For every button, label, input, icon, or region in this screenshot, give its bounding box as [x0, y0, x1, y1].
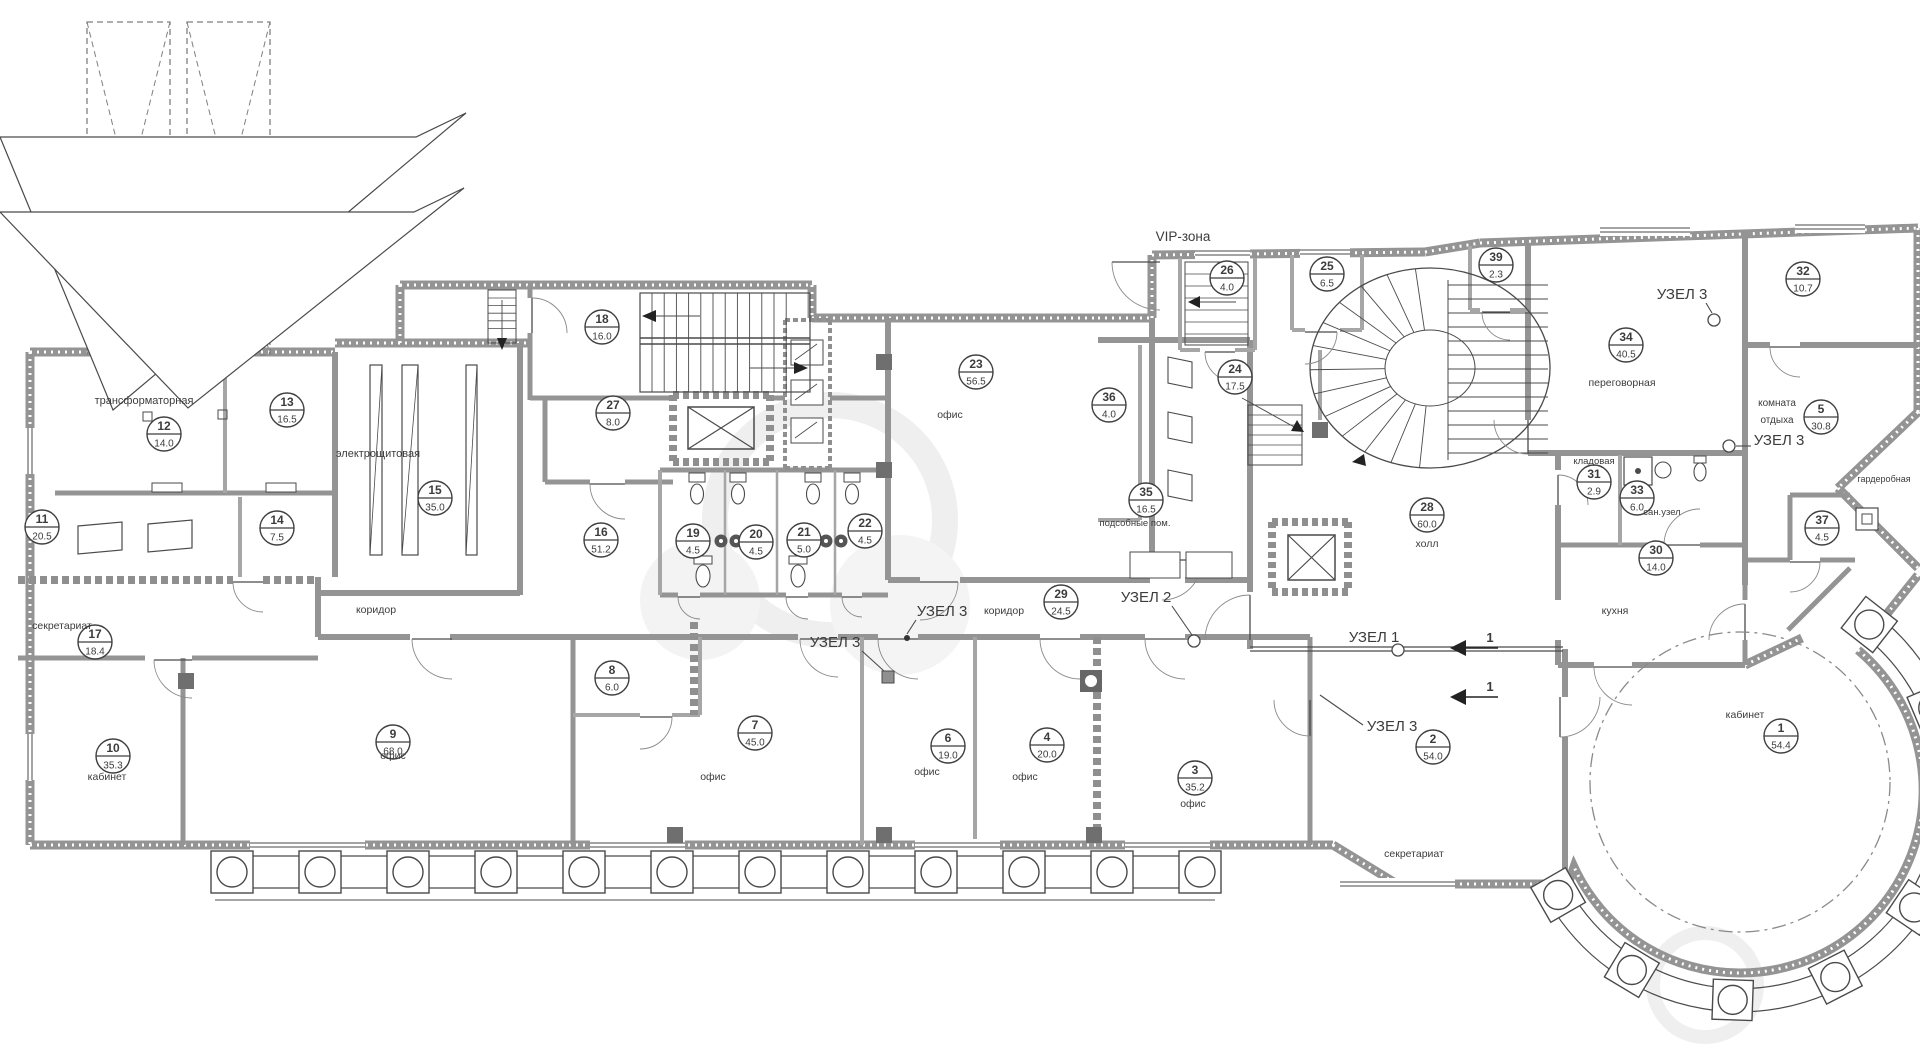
- room-number: 8: [609, 663, 616, 677]
- room-area: 6.0: [605, 683, 619, 694]
- door-swing: [1205, 595, 1250, 640]
- door-swing: [590, 484, 625, 519]
- room-name-label: офис: [700, 771, 726, 783]
- room-area: 20.0: [1037, 750, 1057, 761]
- door-swing: [640, 717, 672, 749]
- window: [24, 428, 36, 474]
- room-area: 14.0: [1646, 563, 1666, 574]
- room-number: 23: [969, 357, 983, 371]
- zone-label: VIP-зона: [1156, 229, 1211, 244]
- structural-column: [876, 827, 892, 843]
- room-number: 6: [945, 731, 952, 745]
- stair-arrow: [642, 310, 656, 322]
- room-number: 27: [606, 398, 620, 412]
- room-marker: 86.0: [595, 661, 629, 695]
- room-area: 54.4: [1771, 741, 1791, 752]
- axis-circle: [1590, 632, 1890, 932]
- door-swing: [1770, 347, 1800, 377]
- window: [1795, 221, 1865, 233]
- oval-stair-tread: [1361, 286, 1404, 337]
- node-leader: [1320, 695, 1363, 725]
- room-number: 12: [157, 419, 171, 433]
- oval-stair-tread: [1342, 394, 1397, 436]
- room-marker: 204.5: [739, 525, 773, 559]
- room-name-label: офис: [914, 766, 940, 778]
- node-marker: [1723, 440, 1735, 452]
- door-swing: [532, 298, 567, 333]
- room-area: 19.0: [938, 751, 958, 762]
- node-label: УЗЕЛ 3: [917, 603, 968, 620]
- floor-plan-svg: 154.4254.0335.2420.0530.8619.0745.086.09…: [0, 0, 1920, 1056]
- node-leader: [1706, 303, 1712, 313]
- toilet: [732, 484, 745, 504]
- room-area: 54.0: [1423, 752, 1443, 763]
- node-label: УЗЕЛ 3: [810, 634, 861, 651]
- room-area: 51.2: [591, 545, 611, 556]
- room-marker: 1214.0: [147, 417, 181, 451]
- room-name-label: офис: [380, 750, 406, 762]
- floor-plan: 154.4254.0335.2420.0530.8619.0745.086.09…: [0, 0, 1920, 1056]
- room-name-label: кабинет: [88, 771, 127, 783]
- room-area: 20.5: [32, 532, 52, 543]
- sink-drain: [719, 539, 723, 543]
- room-area: 10.7: [1793, 284, 1813, 295]
- room-marker: 745.0: [738, 716, 772, 750]
- room-number: 13: [280, 395, 294, 409]
- toilet-tank: [844, 473, 860, 482]
- room-area: 5.0: [797, 545, 811, 556]
- room-name-label: переговорная: [1588, 377, 1655, 389]
- room-name-label: кухня: [1602, 605, 1629, 617]
- window: [24, 734, 36, 780]
- oval-stair-outline: [1310, 268, 1550, 468]
- room-area: 4.5: [686, 546, 700, 557]
- room-area: 60.0: [1417, 520, 1437, 531]
- room-number: 32: [1796, 264, 1810, 278]
- room-area: 18.4: [85, 647, 105, 658]
- room-number: 30: [1649, 543, 1663, 557]
- room-area: 4.5: [858, 536, 872, 547]
- room-number: 4: [1044, 730, 1051, 744]
- room-marker: 254.0: [1416, 730, 1450, 764]
- equipment: [78, 522, 122, 554]
- toilet: [807, 484, 820, 504]
- room-number: 20: [749, 527, 763, 541]
- oval-stair-tread: [1420, 406, 1427, 468]
- heater: [266, 483, 296, 492]
- room-marker: 278.0: [596, 396, 630, 430]
- door-swing: [1145, 639, 1185, 679]
- room-name-label: электрощитовая: [336, 448, 420, 460]
- room-number: 24: [1228, 362, 1242, 376]
- room-name-label: сан.узел: [1643, 507, 1680, 518]
- shelf: [1168, 357, 1192, 388]
- room-marker: 1651.2: [584, 523, 618, 557]
- vent-box: [791, 418, 823, 443]
- room-area: 35.2: [1185, 783, 1205, 794]
- room-marker: 256.5: [1310, 257, 1344, 291]
- room-area: 16.0: [592, 332, 612, 343]
- node-marker: [1392, 644, 1404, 656]
- node-label: УЗЕЛ 3: [1657, 286, 1708, 303]
- door-swing: [1560, 697, 1600, 737]
- room-area: 4.5: [1815, 533, 1829, 544]
- room-marker: 1316.5: [270, 393, 304, 427]
- room-name-label: кабинет: [1726, 709, 1765, 721]
- room-area: 14.0: [154, 439, 174, 450]
- section-arrow: [1450, 689, 1466, 705]
- door-swing: [233, 582, 263, 612]
- node-marker: [1188, 635, 1200, 647]
- room-marker: 619.0: [931, 729, 965, 763]
- room-number: 34: [1619, 330, 1633, 344]
- structural-column: [1312, 422, 1328, 438]
- oval-stair-tread: [1415, 269, 1424, 331]
- room-name-label: секретариат: [1384, 848, 1444, 860]
- sink-drain: [839, 539, 843, 543]
- room-number: 35: [1139, 485, 1153, 499]
- room-number: 18: [595, 312, 609, 326]
- room-number: 33: [1630, 483, 1644, 497]
- room-number: 11: [36, 512, 49, 526]
- toilet: [791, 565, 805, 587]
- toilet: [691, 484, 704, 504]
- sink-drain: [824, 539, 828, 543]
- room-number: 19: [686, 526, 700, 540]
- room-name-label: коридор: [356, 604, 396, 616]
- room-name-label: трансформаторная: [95, 395, 194, 407]
- sink-drain: [734, 539, 738, 543]
- room-area: 6.5: [1320, 279, 1334, 290]
- room-number: 16: [594, 525, 608, 539]
- room-marker: 2860.0: [1410, 498, 1444, 532]
- toilet-tank: [805, 473, 821, 482]
- room-marker: 147.5: [260, 511, 294, 545]
- toilet-tank: [1694, 456, 1706, 463]
- window: [1300, 246, 1350, 258]
- room-marker: 2356.5: [959, 355, 993, 389]
- room-area: 7.5: [270, 533, 284, 544]
- room-marker: 215.0: [787, 523, 821, 557]
- room-name-label: офис: [937, 409, 963, 421]
- room-marker: 2924.5: [1044, 585, 1078, 619]
- window: [1195, 247, 1250, 259]
- cupboard: [1186, 552, 1232, 578]
- room-marker: 3210.7: [1786, 262, 1820, 296]
- toilet: [1694, 463, 1706, 481]
- room-number: 15: [428, 483, 442, 497]
- room-number: 2: [1430, 732, 1437, 746]
- door-swing: [412, 639, 452, 679]
- room-marker: 194.5: [676, 524, 710, 558]
- toilet: [846, 484, 859, 504]
- structural-column: [876, 462, 892, 478]
- room-number: 25: [1320, 259, 1334, 273]
- room-marker: 3440.5: [1609, 328, 1643, 362]
- structural-column: [876, 354, 892, 370]
- room-area: 17.5: [1225, 382, 1245, 393]
- toilet-tank: [689, 473, 705, 482]
- structural-column: [178, 673, 194, 689]
- oval-stair-tread: [1339, 302, 1396, 343]
- room-area: 45.0: [745, 738, 765, 749]
- room-name-label: офис: [1012, 771, 1038, 783]
- equipment-box: [143, 412, 152, 421]
- room-area: 4.5: [749, 547, 763, 558]
- window: [250, 839, 365, 851]
- room-number: 14: [270, 513, 284, 527]
- room-marker: 392.3: [1479, 248, 1513, 282]
- room-name-label: коридор: [984, 605, 1024, 617]
- node-label: УЗЕЛ 2: [1121, 589, 1172, 606]
- room-marker: 530.8: [1804, 400, 1838, 434]
- window: [1340, 878, 1455, 890]
- node-label: УЗЕЛ 1: [1349, 629, 1400, 646]
- room-area: 2.3: [1489, 270, 1503, 281]
- room-area: 8.0: [606, 418, 620, 429]
- wardrobe-box: [1856, 508, 1878, 530]
- room-number: 9: [390, 727, 397, 741]
- room-area: 6.0: [1630, 503, 1644, 514]
- cupboard: [1130, 552, 1180, 578]
- stair-arrow: [1352, 454, 1366, 466]
- room-number: 36: [1102, 390, 1116, 404]
- room-marker: 264.0: [1210, 261, 1244, 295]
- sink: [1655, 462, 1671, 478]
- section-label: 1: [1486, 630, 1493, 645]
- window: [1125, 839, 1210, 851]
- room-marker: 1535.0: [418, 481, 452, 515]
- room-marker: 2417.5: [1218, 360, 1252, 394]
- interior-wall: [1788, 568, 1850, 630]
- oval-stair-tread: [1325, 386, 1391, 416]
- structural-column: [667, 827, 683, 843]
- room-marker: 420.0: [1030, 728, 1064, 762]
- oval-stair-tread: [1387, 275, 1414, 333]
- room-marker: 1120.5: [25, 510, 59, 544]
- room-marker: 335.2: [1178, 761, 1212, 795]
- room-area: 4.0: [1102, 410, 1116, 421]
- room-area: 35.0: [425, 503, 445, 514]
- room-name-label: гардеробная: [1857, 474, 1910, 484]
- room-number: 39: [1489, 250, 1503, 264]
- room-number: 21: [797, 525, 811, 539]
- room-marker: 224.5: [848, 514, 882, 548]
- room-area: 16.5: [1136, 505, 1156, 516]
- oval-stair-tread: [1365, 400, 1406, 452]
- room-marker: 1816.0: [585, 310, 619, 344]
- toilet-tank: [730, 473, 746, 482]
- exterior-wall: [1568, 650, 1920, 973]
- room-area: 16.5: [277, 415, 297, 426]
- room-name-label: комната: [1758, 398, 1796, 409]
- room-number: 7: [752, 718, 759, 732]
- room-area: 4.0: [1220, 283, 1234, 294]
- room-number: 1: [1778, 721, 1785, 735]
- node-marker: [882, 671, 894, 683]
- sink: [1085, 675, 1097, 687]
- room-area: 2.9: [1587, 487, 1601, 498]
- door-swing: [1790, 562, 1820, 592]
- shelf: [1168, 470, 1192, 501]
- room-area: 30.8: [1811, 422, 1831, 433]
- door-swing: [1274, 700, 1310, 736]
- shelf: [1168, 412, 1192, 443]
- door-swing: [1040, 639, 1080, 679]
- room-name-label: подсобные пом.: [1100, 518, 1171, 529]
- room-marker: 3014.0: [1639, 541, 1673, 575]
- room-number: 29: [1054, 587, 1068, 601]
- room-marker: 3516.5: [1129, 483, 1163, 517]
- room-name-label: секретариат: [32, 620, 92, 632]
- room-name-label: офис: [1180, 798, 1206, 810]
- room-name-label: холл: [1416, 538, 1439, 550]
- room-number: 10: [106, 741, 120, 755]
- window: [1600, 224, 1690, 236]
- room-number: 37: [1815, 513, 1829, 527]
- node-label: УЗЕЛ 3: [1754, 432, 1805, 449]
- node-marker: [1708, 314, 1720, 326]
- equipment: [148, 520, 192, 552]
- node-leader: [1172, 606, 1192, 635]
- room-area: 24.5: [1051, 607, 1071, 618]
- room-marker: 312.9: [1577, 465, 1611, 499]
- room-area: 40.5: [1616, 350, 1636, 361]
- shower-drain: [1635, 468, 1641, 474]
- node-marker: [904, 635, 910, 641]
- window: [915, 839, 1000, 851]
- room-number: 22: [858, 516, 872, 530]
- room-number: 5: [1818, 402, 1825, 416]
- room-area: 35.3: [103, 761, 123, 772]
- oval-stair-tread: [1323, 323, 1390, 351]
- toilet: [696, 565, 710, 587]
- room-number: 28: [1420, 500, 1434, 514]
- room-name-label: кладовая: [1573, 456, 1614, 467]
- room-marker: 154.4: [1764, 719, 1798, 753]
- section-label: 1: [1486, 679, 1493, 694]
- node-label: УЗЕЛ 3: [1367, 718, 1418, 735]
- section-arrow: [1450, 640, 1466, 656]
- structural-column: [1086, 827, 1102, 843]
- heater: [152, 483, 182, 492]
- oval-stair-tread: [1314, 378, 1386, 394]
- door-swing: [1482, 312, 1510, 340]
- oval-stair-tread: [1391, 404, 1415, 463]
- room-number: 3: [1192, 763, 1199, 777]
- room-name-label: отдыха: [1760, 415, 1794, 426]
- room-area: 56.5: [966, 377, 986, 388]
- room-number: 26: [1220, 263, 1234, 277]
- room-marker: 374.5: [1805, 511, 1839, 545]
- room-marker: 1035.3: [96, 739, 130, 773]
- room-number: 31: [1587, 467, 1601, 481]
- room-marker: 364.0: [1092, 388, 1126, 422]
- balustrade-arc: [1548, 615, 1920, 1012]
